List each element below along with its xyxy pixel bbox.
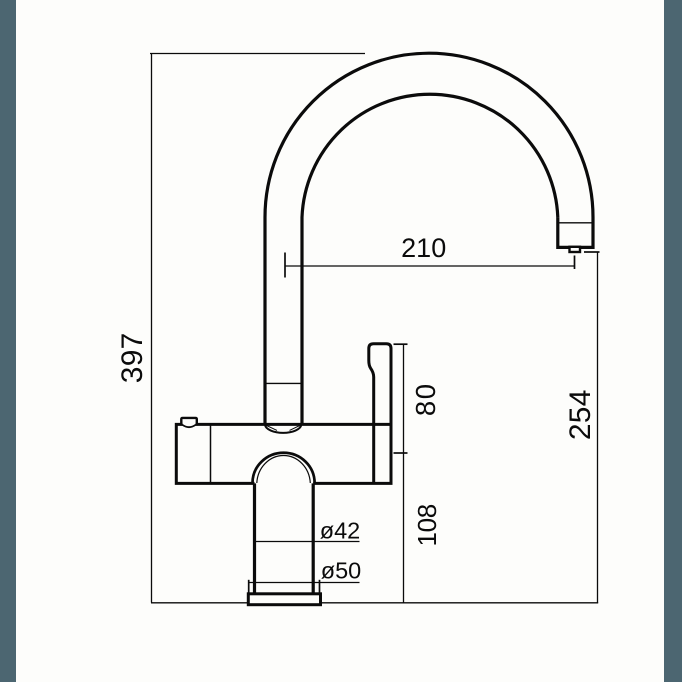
svg-text:108: 108	[412, 504, 442, 546]
svg-text:80: 80	[410, 383, 441, 417]
svg-text:397: 397	[116, 332, 149, 383]
svg-text:ø42: ø42	[320, 517, 361, 543]
svg-text:210: 210	[401, 233, 446, 263]
svg-text:ø50: ø50	[321, 558, 362, 584]
svg-text:254: 254	[564, 389, 597, 440]
